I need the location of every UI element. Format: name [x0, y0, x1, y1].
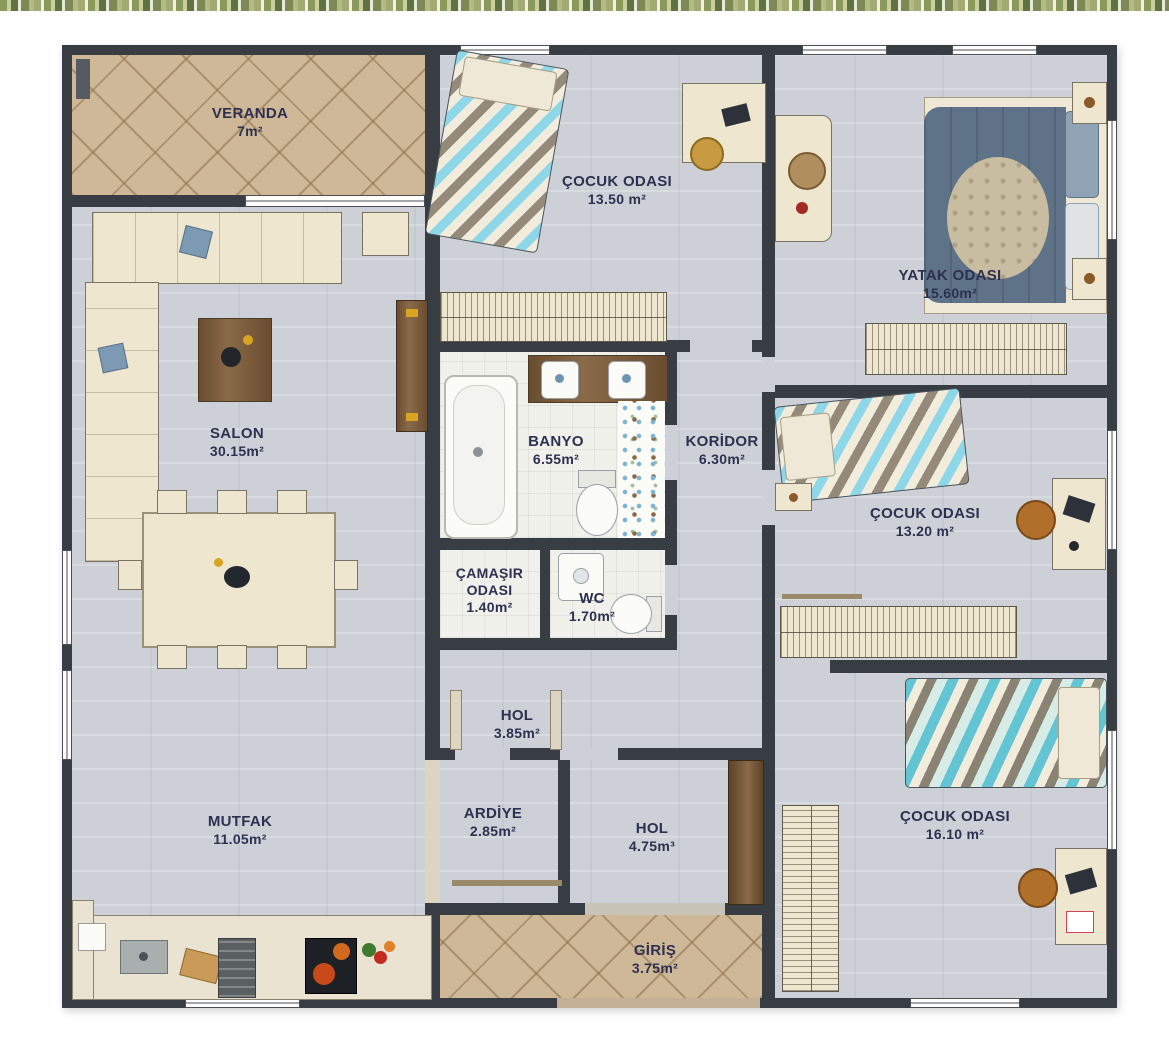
floor-plan: VERANDA 7m² ÇOCUK ODASI 13.50 m² YATAK O… [62, 45, 1117, 1008]
window-left-salon-1 [62, 550, 72, 645]
bathroom-mosaic-tiles [618, 401, 665, 538]
stove [305, 938, 357, 994]
room-area: 30.15m² [137, 443, 337, 460]
room-name: SALON [137, 425, 337, 443]
desk-chair-cocuk3 [1018, 868, 1058, 908]
door-gap-hol2 [560, 748, 618, 760]
room-area: 13.20 m² [825, 523, 1025, 540]
dining-chair [157, 645, 187, 669]
bed-cocuk3 [905, 678, 1107, 788]
coffee-table [198, 318, 272, 402]
bed-pillow [1065, 111, 1099, 198]
dining-table [142, 512, 336, 648]
sink-drain [139, 952, 148, 961]
side-table [362, 212, 409, 256]
toilet-bowl [576, 484, 618, 536]
coffee-table-decor [221, 347, 241, 367]
giris-floor [435, 915, 762, 998]
window-right-cocuk2 [1107, 430, 1117, 550]
room-area: 2.85m² [438, 823, 548, 840]
room-name: ARDİYE [438, 805, 548, 823]
dining-chair [334, 560, 358, 590]
ardiye-shelf [452, 880, 562, 886]
vegetables [384, 941, 395, 952]
sink-drain [622, 374, 631, 383]
door-gap-banyo [665, 425, 677, 480]
wc-sink [558, 553, 604, 601]
wall-outer-left [62, 45, 72, 1008]
room-label-mutfak: MUTFAK 11.05m² [140, 813, 340, 848]
wc-toilet-bowl [610, 594, 652, 634]
wardrobe-yatak [865, 323, 1067, 375]
bench-decor [789, 493, 798, 502]
door-gap-ardiye [455, 748, 510, 760]
bed-pillow [1058, 687, 1100, 779]
decorative-top-border [0, 0, 1169, 11]
desk-decor [1069, 541, 1079, 551]
desk-cocuk2 [1052, 478, 1106, 570]
room-area: 4.75m³ [592, 838, 712, 855]
window-top-yatak-2 [952, 45, 1037, 55]
sofa-pillow-2 [98, 343, 129, 374]
bathroom-counter [528, 355, 668, 403]
door-panel-mutfak [425, 760, 440, 903]
tv-unit [396, 300, 428, 432]
window-veranda-salon [245, 195, 425, 207]
coffee-table-decor-dot [243, 335, 253, 345]
dining-chair [118, 560, 142, 590]
dining-decor-dot [214, 558, 223, 567]
bed-pillow [780, 412, 836, 481]
wardrobe-cocuk1 [440, 292, 667, 342]
kitchen-small-appliance [78, 923, 106, 951]
dining-chair [217, 645, 247, 669]
room-name: MUTFAK [140, 813, 340, 831]
window-bottom-cocuk3 [910, 998, 1020, 1008]
door-gap-giris [585, 903, 725, 915]
vegetables [374, 951, 387, 964]
pot [313, 963, 335, 985]
room-area: 11.05m² [140, 831, 340, 848]
laptop [1065, 868, 1097, 895]
nightstand-lamp [1084, 97, 1095, 108]
desk-chair-cocuk1 [690, 137, 724, 171]
nightstand-lamp [1084, 273, 1095, 284]
room-label-salon: SALON 30.15m² [137, 425, 337, 460]
nightstand [1072, 82, 1107, 124]
vanity-decor [796, 202, 808, 214]
room-area: 6.30m² [672, 451, 772, 468]
room-label-koridor: KORİDOR 6.30m² [672, 433, 772, 468]
sofa-top [92, 212, 342, 284]
wc-toilet [610, 590, 662, 636]
bathtub [444, 375, 518, 539]
wall-h4 [425, 638, 677, 650]
desk-papers [1066, 911, 1094, 933]
veranda-column [76, 59, 90, 99]
bathtub-drain [473, 447, 483, 457]
vanity-desk [775, 115, 832, 242]
pot [333, 943, 350, 960]
wardrobe-cocuk2 [780, 606, 1017, 658]
window-left-salon-2 [62, 670, 72, 760]
room-area: 16.10 m² [855, 826, 1055, 843]
room-name: HOL [592, 820, 712, 838]
door-gap-cocuk1 [690, 340, 752, 352]
wc-sink-basin [573, 568, 589, 584]
window-right-yatak [1107, 120, 1117, 240]
window-right-cocuk3 [1107, 730, 1117, 850]
veranda-floor [72, 55, 425, 195]
room-label-ardiye: ARDİYE 2.85m² [438, 805, 548, 840]
tv-unit-decor-1 [406, 309, 418, 317]
wall-h3 [425, 538, 677, 550]
wall-camasir-wc [540, 550, 550, 638]
wardrobe-cocuk3 [782, 805, 839, 992]
toilet [572, 470, 620, 536]
dining-chair [217, 490, 247, 514]
door-jamb [550, 690, 562, 750]
room-name: ÇOCUK ODASI [855, 808, 1055, 826]
laptop [721, 103, 751, 127]
bed-cocuk1 [425, 50, 570, 254]
door-jamb [450, 690, 462, 750]
entrance-door-opening [557, 998, 760, 1008]
shelf [782, 594, 862, 599]
room-label-cocuk2: ÇOCUK ODASI 13.20 m² [825, 505, 1025, 540]
tv-unit-decor-2 [406, 413, 418, 421]
window-top-yatak-1 [802, 45, 887, 55]
bedside-bench [775, 483, 812, 511]
sink-drain [555, 374, 564, 383]
nightstand [1072, 258, 1107, 300]
door-gap-koridor-yatak [762, 357, 775, 392]
vanity-mirror [788, 152, 826, 190]
desk-chair-cocuk2 [1016, 500, 1056, 540]
camasir-floor [440, 550, 540, 638]
dining-chair [277, 490, 307, 514]
dining-centerpiece [224, 566, 250, 588]
kitchen-sink [120, 940, 168, 974]
door-gap-cocuk3 [775, 660, 830, 673]
dining-chair [277, 645, 307, 669]
room-label-cocuk3: ÇOCUK ODASI 16.10 m² [855, 808, 1055, 843]
dishwasher [218, 938, 256, 998]
dining-chair [157, 490, 187, 514]
door-leaf-hol [728, 760, 764, 905]
room-name: KORİDOR [672, 433, 772, 451]
bed-master-blanket [947, 157, 1049, 279]
room-label-hol2: HOL 4.75m³ [592, 820, 712, 855]
desk-cocuk3 [1055, 848, 1107, 945]
door-gap-wc [665, 565, 677, 615]
laptop [1063, 495, 1096, 523]
door-gap-koridor-cocuk2 [762, 470, 775, 525]
room-name: ÇOCUK ODASI [825, 505, 1025, 523]
bed-pillow [458, 56, 558, 112]
